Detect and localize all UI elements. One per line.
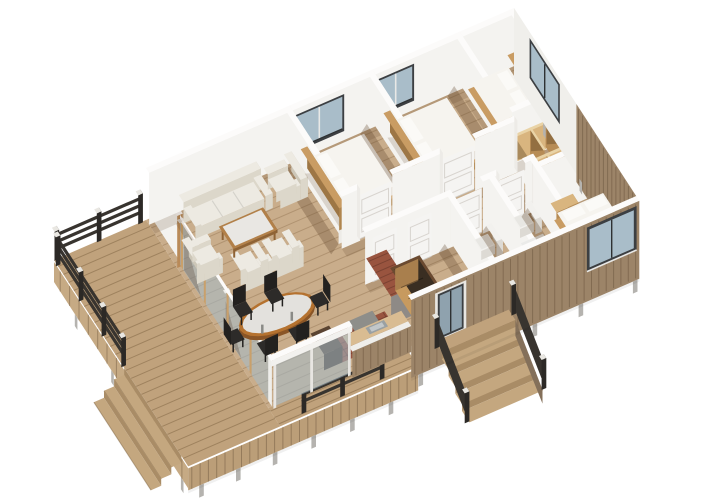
floorplan-render [0, 0, 703, 502]
house-3d-floorplan [0, 0, 703, 502]
